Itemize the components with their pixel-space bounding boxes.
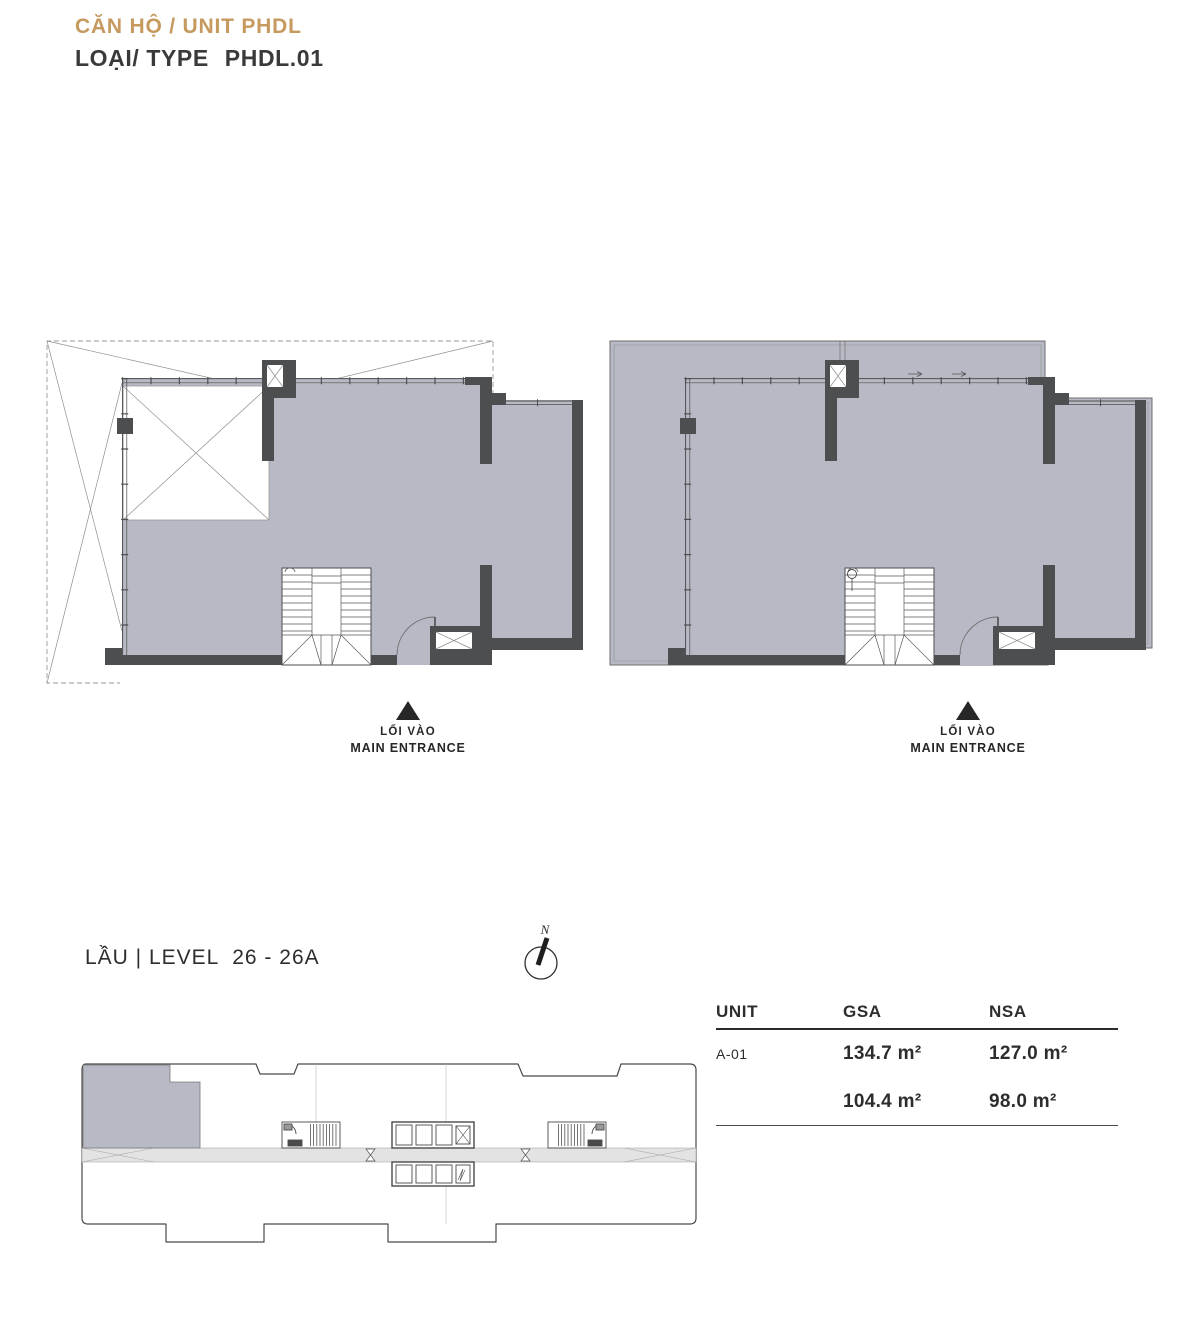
unit-id: A-01 xyxy=(716,1046,843,1062)
unit-floor-plans xyxy=(45,333,1160,685)
area-table: UNIT GSA NSA A-01 134.7 m² 127.0 m² 104.… xyxy=(716,1002,1118,1126)
table-bottom-rule xyxy=(716,1125,1118,1126)
floor-plan-level-26a xyxy=(610,341,1152,665)
table-header-rule xyxy=(716,1028,1118,1030)
table-row: A-01 134.7 m² 127.0 m² xyxy=(716,1043,1118,1065)
table-row: 104.4 m² 98.0 m² xyxy=(716,1091,1118,1113)
entrance-label-vi: LỐI VÀO xyxy=(883,725,1053,740)
col-gsa: GSA xyxy=(843,1002,989,1022)
entrance-label-en: MAIN ENTRANCE xyxy=(323,740,493,757)
entrance-marker-right: LỐI VÀO MAIN ENTRANCE xyxy=(883,701,1053,757)
type-value: PHDL.01 xyxy=(225,45,324,71)
type-label: LOẠI/ TYPE xyxy=(75,45,209,71)
gsa-value: 134.7 m² xyxy=(843,1043,989,1065)
header: CĂN HỘ / UNIT PHDL LOẠI/ TYPEPHDL.01 xyxy=(75,14,324,73)
brochure-page: CĂN HỘ / UNIT PHDL LOẠI/ TYPEPHDL.01 xyxy=(0,0,1190,1318)
page-title: CĂN HỘ / UNIT PHDL xyxy=(75,14,324,40)
entrance-label-en: MAIN ENTRANCE xyxy=(883,740,1053,757)
entrance-marker-left: LỐI VÀO MAIN ENTRANCE xyxy=(323,701,493,757)
unit-type-line: LOẠI/ TYPEPHDL.01 xyxy=(75,43,324,73)
nsa-value: 98.0 m² xyxy=(989,1091,1118,1113)
key-plan xyxy=(70,1048,710,1263)
col-nsa: NSA xyxy=(989,1002,1118,1022)
gsa-value: 104.4 m² xyxy=(843,1091,989,1113)
north-compass-icon: N xyxy=(515,920,575,990)
floor-plan-level-26 xyxy=(47,341,583,683)
col-unit: UNIT xyxy=(716,1002,843,1022)
entrance-label-vi: LỐI VÀO xyxy=(323,725,493,740)
svg-text:N: N xyxy=(540,922,551,937)
area-table-header: UNIT GSA NSA xyxy=(716,1002,1118,1028)
nsa-value: 127.0 m² xyxy=(989,1043,1118,1065)
entrance-triangle-icon xyxy=(396,701,420,720)
level-label: LẦU | LEVEL 26 - 26A xyxy=(85,946,320,970)
entrance-triangle-icon xyxy=(956,701,980,720)
